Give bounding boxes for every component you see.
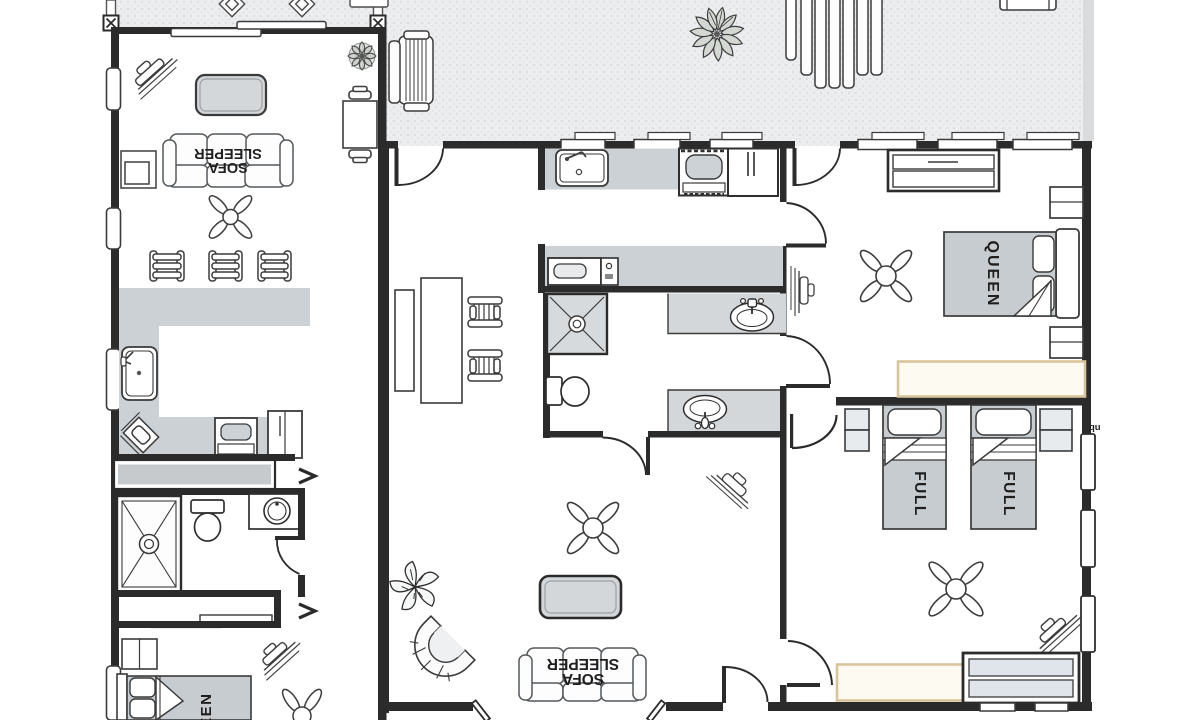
svg-text:SLEEPER: SLEEPER xyxy=(547,655,619,672)
svg-text:QUEEN: QUEEN xyxy=(198,693,215,720)
svg-text:SLEEPER: SLEEPER xyxy=(194,145,262,161)
svg-text:QUEEN: QUEEN xyxy=(984,241,1001,308)
svg-text:FULL: FULL xyxy=(911,471,928,517)
svg-text:FULL: FULL xyxy=(1000,471,1017,517)
svg-text:qu: qu xyxy=(1089,422,1101,433)
